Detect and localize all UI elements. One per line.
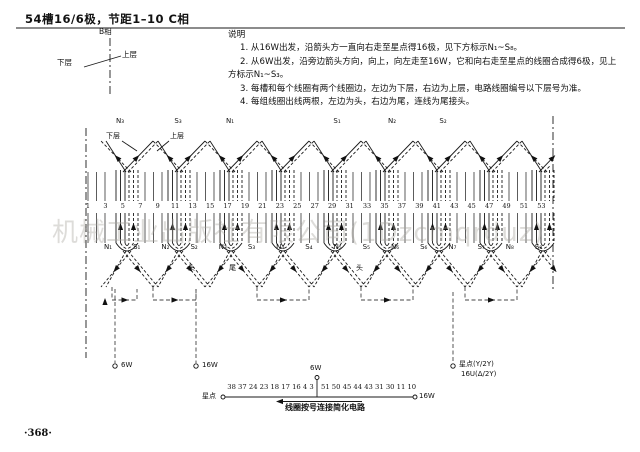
page-title: 54槽16/6极，节距1–10 C相 <box>25 11 189 27</box>
page-number: ·368· <box>24 428 52 439</box>
note-line: 2. 从6W出发，沿旁边箭头方向，向上，向左走至16W，它和向右走至星点的线圈合… <box>228 56 626 69</box>
note-line: 说明 <box>228 29 626 42</box>
note-line: 3. 每槽和每个线圈有两个线圈边，左边为下层，右边为上层，电路线圈编号以下层号为… <box>228 83 626 96</box>
book-page: 机械工业出版社有限公司(1Dzcmqrduz) 54槽16/6极，节距1–10 … <box>0 0 640 452</box>
note-line: 1. 从16W出发，沿箭头方一直向右走至星点得16极，见下方标示N₁~S₈。 <box>228 42 626 55</box>
notes-block: 说明1. 从16W出发，沿箭头方一直向右走至星点得16极，见下方标示N₁~S₈。… <box>228 29 626 109</box>
note-line: 方标示N₁~S₃。 <box>228 69 626 82</box>
note-line: 4. 每组线圈出线两根，左边为头，右边为尾，连线为尾接头。 <box>228 96 626 109</box>
